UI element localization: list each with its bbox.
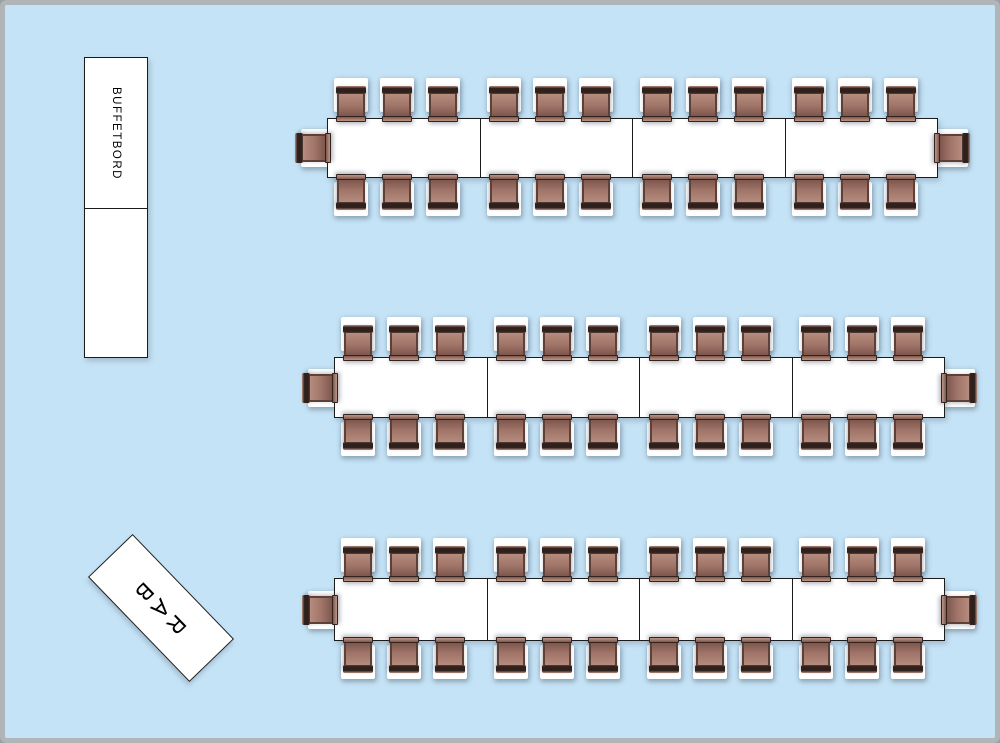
chair[interactable] bbox=[535, 86, 565, 122]
bar-label: BAR bbox=[131, 578, 190, 638]
chair-seat bbox=[429, 94, 457, 116]
chair-front-rail bbox=[734, 116, 764, 122]
chair-front-rail bbox=[886, 174, 916, 180]
chair-seat bbox=[643, 180, 671, 202]
chair-seat bbox=[795, 180, 823, 202]
chair-backrest bbox=[336, 86, 366, 94]
chair-backrest bbox=[886, 202, 916, 210]
chair-front-rail bbox=[801, 576, 831, 582]
chair-seat bbox=[689, 180, 717, 202]
chair-seat bbox=[543, 554, 571, 576]
chair-seat bbox=[436, 554, 464, 576]
chair-front-rail bbox=[734, 174, 764, 180]
chair[interactable] bbox=[840, 174, 870, 210]
chair[interactable] bbox=[389, 414, 419, 450]
chair[interactable] bbox=[302, 595, 338, 625]
chair-seat bbox=[742, 420, 770, 442]
chair-seat bbox=[536, 180, 564, 202]
chair-seat bbox=[643, 94, 671, 116]
chair-front-rail bbox=[801, 355, 831, 361]
chair[interactable] bbox=[588, 546, 618, 582]
chair-front-rail bbox=[893, 355, 923, 361]
chair-backrest bbox=[649, 665, 679, 673]
chair-front-rail bbox=[343, 355, 373, 361]
chair-seat bbox=[742, 643, 770, 665]
chair-seat bbox=[802, 420, 830, 442]
chair-seat bbox=[696, 333, 724, 355]
chair[interactable] bbox=[489, 174, 519, 210]
chair-front-rail bbox=[428, 116, 458, 122]
table-segment bbox=[786, 119, 938, 177]
chair-front-rail bbox=[801, 414, 831, 420]
chair[interactable] bbox=[741, 414, 771, 450]
chair-backrest bbox=[734, 202, 764, 210]
buffet-label: BUFFETBORD bbox=[110, 87, 122, 180]
chair-front-rail bbox=[336, 116, 366, 122]
chair[interactable] bbox=[295, 133, 331, 163]
chair-backrest bbox=[840, 202, 870, 210]
table-segment bbox=[488, 358, 641, 417]
chair[interactable] bbox=[302, 373, 338, 403]
chair[interactable] bbox=[741, 637, 771, 673]
chair-front-rail bbox=[695, 414, 725, 420]
chair-backrest bbox=[343, 325, 373, 333]
chair-front-rail bbox=[642, 174, 672, 180]
chair-seat bbox=[696, 420, 724, 442]
chair[interactable] bbox=[934, 133, 970, 163]
chair-backrest bbox=[649, 442, 679, 450]
chair-seat bbox=[344, 554, 372, 576]
chair-front-rail bbox=[336, 174, 366, 180]
chair-front-rail bbox=[649, 637, 679, 643]
chair-seat bbox=[841, 180, 869, 202]
chair-backrest bbox=[389, 325, 419, 333]
chair[interactable] bbox=[695, 546, 725, 582]
chair-front-rail bbox=[695, 355, 725, 361]
chair[interactable] bbox=[695, 414, 725, 450]
chair-backrest bbox=[428, 202, 458, 210]
chair-backrest bbox=[801, 665, 831, 673]
chair[interactable] bbox=[382, 174, 412, 210]
chair-seat bbox=[848, 554, 876, 576]
chair-seat bbox=[497, 554, 525, 576]
chair-seat bbox=[543, 420, 571, 442]
chair-backrest bbox=[542, 325, 572, 333]
bar-counter[interactable]: BAR bbox=[87, 534, 233, 682]
chair-backrest bbox=[496, 442, 526, 450]
chair-backrest bbox=[969, 373, 977, 403]
chair-front-rail bbox=[581, 174, 611, 180]
chair[interactable] bbox=[847, 637, 877, 673]
chair-backrest bbox=[389, 442, 419, 450]
chair-front-rail bbox=[741, 637, 771, 643]
chair-seat bbox=[940, 134, 962, 162]
chair-backrest bbox=[435, 665, 465, 673]
chair[interactable] bbox=[389, 637, 419, 673]
chair-seat bbox=[310, 374, 332, 402]
chair-seat bbox=[543, 643, 571, 665]
chair-seat bbox=[390, 643, 418, 665]
chair[interactable] bbox=[847, 546, 877, 582]
chair-seat bbox=[894, 420, 922, 442]
chair-seat bbox=[436, 333, 464, 355]
chair[interactable] bbox=[542, 546, 572, 582]
floor-plan-frame: BUFFETBORD BAR bbox=[0, 0, 1000, 743]
chair[interactable] bbox=[893, 637, 923, 673]
chair-backrest bbox=[847, 665, 877, 673]
chair-seat bbox=[650, 333, 678, 355]
banquet-table-2[interactable] bbox=[334, 357, 945, 418]
chair-seat bbox=[650, 643, 678, 665]
chair-front-rail bbox=[893, 637, 923, 643]
chair[interactable] bbox=[649, 325, 679, 361]
chair[interactable] bbox=[886, 86, 916, 122]
chair-seat bbox=[894, 554, 922, 576]
chair-front-rail bbox=[343, 414, 373, 420]
chair-seat bbox=[848, 643, 876, 665]
chair-front-rail bbox=[332, 373, 338, 403]
chair-seat bbox=[490, 180, 518, 202]
chair-front-rail bbox=[496, 576, 526, 582]
chair[interactable] bbox=[435, 414, 465, 450]
chair-seat bbox=[497, 420, 525, 442]
chair-backrest bbox=[389, 665, 419, 673]
chair[interactable] bbox=[642, 174, 672, 210]
chair-front-rail bbox=[794, 116, 824, 122]
chair-front-rail bbox=[389, 414, 419, 420]
chair-backrest bbox=[295, 133, 303, 163]
chair-front-rail bbox=[542, 637, 572, 643]
chair-front-rail bbox=[535, 116, 565, 122]
chair-backrest bbox=[496, 546, 526, 554]
chair[interactable] bbox=[941, 595, 977, 625]
chair-backrest bbox=[741, 546, 771, 554]
chair-seat bbox=[696, 554, 724, 576]
chair-seat bbox=[390, 554, 418, 576]
chair-seat bbox=[887, 94, 915, 116]
chair[interactable] bbox=[840, 86, 870, 122]
chair[interactable] bbox=[801, 414, 831, 450]
chair-seat bbox=[742, 333, 770, 355]
chair-front-rail bbox=[695, 576, 725, 582]
chair-front-rail bbox=[588, 637, 618, 643]
chair[interactable] bbox=[588, 414, 618, 450]
chair-front-rail bbox=[847, 414, 877, 420]
buffet-section-1: BUFFETBORD bbox=[85, 58, 147, 209]
chair-backrest bbox=[435, 442, 465, 450]
chair-front-rail bbox=[343, 637, 373, 643]
chair-seat bbox=[383, 180, 411, 202]
chair-front-rail bbox=[496, 355, 526, 361]
chair-front-rail bbox=[893, 414, 923, 420]
chair[interactable] bbox=[435, 637, 465, 673]
chair-seat bbox=[497, 643, 525, 665]
chair[interactable] bbox=[649, 414, 679, 450]
chair-backrest bbox=[893, 325, 923, 333]
chair-front-rail bbox=[941, 595, 947, 625]
chair[interactable] bbox=[542, 637, 572, 673]
chair-front-rail bbox=[496, 637, 526, 643]
chair-seat bbox=[848, 333, 876, 355]
buffet-section-2 bbox=[85, 209, 147, 357]
chair-backrest bbox=[886, 86, 916, 94]
chair[interactable] bbox=[741, 546, 771, 582]
chair-backrest bbox=[794, 86, 824, 94]
chair-front-rail bbox=[542, 576, 572, 582]
chair-backrest bbox=[688, 202, 718, 210]
chair-backrest bbox=[535, 86, 565, 94]
chair[interactable] bbox=[496, 414, 526, 450]
chair[interactable] bbox=[941, 373, 977, 403]
chair-seat bbox=[429, 180, 457, 202]
chair-front-rail bbox=[886, 116, 916, 122]
chair-seat bbox=[650, 554, 678, 576]
chair-backrest bbox=[649, 325, 679, 333]
chair-backrest bbox=[801, 546, 831, 554]
chair-front-rail bbox=[496, 414, 526, 420]
chair[interactable] bbox=[893, 325, 923, 361]
chair-front-rail bbox=[435, 576, 465, 582]
chair-front-rail bbox=[389, 637, 419, 643]
chair-seat bbox=[887, 180, 915, 202]
chair-front-rail bbox=[649, 414, 679, 420]
chair-front-rail bbox=[847, 637, 877, 643]
chair-front-rail bbox=[840, 174, 870, 180]
chair-seat bbox=[344, 333, 372, 355]
chair-seat bbox=[589, 554, 617, 576]
chair-seat bbox=[650, 420, 678, 442]
chair-front-rail bbox=[941, 373, 947, 403]
chair-front-rail bbox=[847, 355, 877, 361]
chair-backrest bbox=[588, 546, 618, 554]
chair-backrest bbox=[343, 665, 373, 673]
chair-seat bbox=[344, 643, 372, 665]
chair[interactable] bbox=[893, 414, 923, 450]
chair[interactable] bbox=[741, 325, 771, 361]
table-segment bbox=[640, 579, 793, 640]
chair[interactable] bbox=[642, 86, 672, 122]
chair-backrest bbox=[840, 86, 870, 94]
chair-seat bbox=[795, 94, 823, 116]
chair-backrest bbox=[893, 665, 923, 673]
chair-backrest bbox=[588, 442, 618, 450]
chair-front-rail bbox=[847, 576, 877, 582]
table-segment bbox=[335, 579, 488, 640]
chair-seat bbox=[802, 643, 830, 665]
chair[interactable] bbox=[688, 86, 718, 122]
chair-backrest bbox=[741, 665, 771, 673]
chair-front-rail bbox=[382, 116, 412, 122]
chair[interactable] bbox=[688, 174, 718, 210]
chair-backrest bbox=[695, 546, 725, 554]
chair-seat bbox=[344, 420, 372, 442]
chair-seat bbox=[802, 554, 830, 576]
chair-backrest bbox=[489, 86, 519, 94]
chair-backrest bbox=[302, 373, 310, 403]
chair[interactable] bbox=[343, 637, 373, 673]
chair[interactable] bbox=[649, 546, 679, 582]
chair[interactable] bbox=[496, 546, 526, 582]
chair-backrest bbox=[343, 546, 373, 554]
chair-backrest bbox=[542, 546, 572, 554]
chair-front-rail bbox=[588, 576, 618, 582]
chair[interactable] bbox=[535, 174, 565, 210]
chair[interactable] bbox=[336, 86, 366, 122]
chair-front-rail bbox=[428, 174, 458, 180]
chair-front-rail bbox=[688, 116, 718, 122]
chair-front-rail bbox=[435, 637, 465, 643]
chair[interactable] bbox=[435, 546, 465, 582]
chair[interactable] bbox=[893, 546, 923, 582]
chair-seat bbox=[390, 420, 418, 442]
chair-front-rail bbox=[741, 355, 771, 361]
chair-seat bbox=[582, 180, 610, 202]
buffet-table[interactable]: BUFFETBORD bbox=[84, 57, 148, 358]
chair[interactable] bbox=[847, 414, 877, 450]
chair-seat bbox=[310, 596, 332, 624]
chair-front-rail bbox=[332, 595, 338, 625]
chair-backrest bbox=[962, 133, 970, 163]
chair-backrest bbox=[847, 325, 877, 333]
chair-backrest bbox=[581, 202, 611, 210]
chair[interactable] bbox=[428, 86, 458, 122]
chair[interactable] bbox=[496, 637, 526, 673]
chair-backrest bbox=[847, 546, 877, 554]
chair-backrest bbox=[435, 325, 465, 333]
chair-front-rail bbox=[588, 355, 618, 361]
table-segment bbox=[328, 119, 481, 177]
chair-seat bbox=[735, 180, 763, 202]
chair[interactable] bbox=[343, 546, 373, 582]
chair[interactable] bbox=[489, 86, 519, 122]
chair[interactable] bbox=[695, 637, 725, 673]
chair-seat bbox=[589, 643, 617, 665]
banquet-table-3[interactable] bbox=[334, 578, 945, 641]
chair-backrest bbox=[542, 665, 572, 673]
chair[interactable] bbox=[343, 414, 373, 450]
chair-seat bbox=[543, 333, 571, 355]
chair[interactable] bbox=[734, 86, 764, 122]
chair[interactable] bbox=[581, 174, 611, 210]
chair[interactable] bbox=[389, 325, 419, 361]
chair-seat bbox=[696, 643, 724, 665]
chair-seat bbox=[689, 94, 717, 116]
chair[interactable] bbox=[588, 325, 618, 361]
chair-seat bbox=[735, 94, 763, 116]
chair-backrest bbox=[734, 86, 764, 94]
chair-front-rail bbox=[893, 576, 923, 582]
chair-backrest bbox=[581, 86, 611, 94]
table-segment bbox=[488, 579, 641, 640]
table-segment bbox=[481, 119, 634, 177]
chair-backrest bbox=[695, 665, 725, 673]
chair-backrest bbox=[801, 442, 831, 450]
chair-seat bbox=[894, 643, 922, 665]
chair-seat bbox=[894, 333, 922, 355]
chair-front-rail bbox=[695, 637, 725, 643]
chair[interactable] bbox=[794, 86, 824, 122]
chair-seat bbox=[802, 333, 830, 355]
chair[interactable] bbox=[801, 546, 831, 582]
chair-backrest bbox=[969, 595, 977, 625]
chair-backrest bbox=[588, 325, 618, 333]
table-segment bbox=[640, 358, 793, 417]
chair[interactable] bbox=[588, 637, 618, 673]
chair[interactable] bbox=[389, 546, 419, 582]
chair-backrest bbox=[389, 546, 419, 554]
chair-seat bbox=[582, 94, 610, 116]
chair-seat bbox=[589, 333, 617, 355]
chair-seat bbox=[303, 134, 325, 162]
chair-front-rail bbox=[581, 116, 611, 122]
chair-backrest bbox=[741, 442, 771, 450]
chair-seat bbox=[490, 94, 518, 116]
chair-backrest bbox=[688, 86, 718, 94]
chair[interactable] bbox=[542, 325, 572, 361]
chair-front-rail bbox=[542, 355, 572, 361]
chair-backrest bbox=[535, 202, 565, 210]
chair-front-rail bbox=[649, 576, 679, 582]
chair-backrest bbox=[695, 442, 725, 450]
chair[interactable] bbox=[496, 325, 526, 361]
chair-backrest bbox=[893, 546, 923, 554]
chair[interactable] bbox=[801, 637, 831, 673]
chair-front-rail bbox=[801, 637, 831, 643]
chair[interactable] bbox=[886, 174, 916, 210]
chair[interactable] bbox=[801, 325, 831, 361]
chair-seat bbox=[589, 420, 617, 442]
chair-seat bbox=[337, 180, 365, 202]
chair-seat bbox=[841, 94, 869, 116]
chair-seat bbox=[497, 333, 525, 355]
chair-front-rail bbox=[840, 116, 870, 122]
chair-front-rail bbox=[389, 355, 419, 361]
chair-front-rail bbox=[435, 414, 465, 420]
chair-seat bbox=[390, 333, 418, 355]
chair-front-rail bbox=[741, 414, 771, 420]
chair-seat bbox=[848, 420, 876, 442]
chair[interactable] bbox=[336, 174, 366, 210]
chair-backrest bbox=[642, 86, 672, 94]
chair-backrest bbox=[496, 665, 526, 673]
table-segment bbox=[633, 119, 786, 177]
chair[interactable] bbox=[428, 174, 458, 210]
chair[interactable] bbox=[734, 174, 764, 210]
chair[interactable] bbox=[649, 637, 679, 673]
chair-backrest bbox=[496, 325, 526, 333]
chair[interactable] bbox=[542, 414, 572, 450]
table-segment bbox=[335, 358, 488, 417]
chair-seat bbox=[436, 643, 464, 665]
chair[interactable] bbox=[435, 325, 465, 361]
chair[interactable] bbox=[794, 174, 824, 210]
chair-front-rail bbox=[741, 576, 771, 582]
chair-front-rail bbox=[535, 174, 565, 180]
chair[interactable] bbox=[581, 86, 611, 122]
chair[interactable] bbox=[343, 325, 373, 361]
chair-backrest bbox=[435, 546, 465, 554]
chair-front-rail bbox=[588, 414, 618, 420]
chair[interactable] bbox=[382, 86, 412, 122]
chair-backrest bbox=[489, 202, 519, 210]
chair-seat bbox=[947, 374, 969, 402]
floor-plan-canvas: BUFFETBORD BAR bbox=[5, 5, 995, 738]
banquet-table-1[interactable] bbox=[327, 118, 938, 178]
chair[interactable] bbox=[695, 325, 725, 361]
chair-backrest bbox=[801, 325, 831, 333]
chair[interactable] bbox=[847, 325, 877, 361]
chair-seat bbox=[436, 420, 464, 442]
